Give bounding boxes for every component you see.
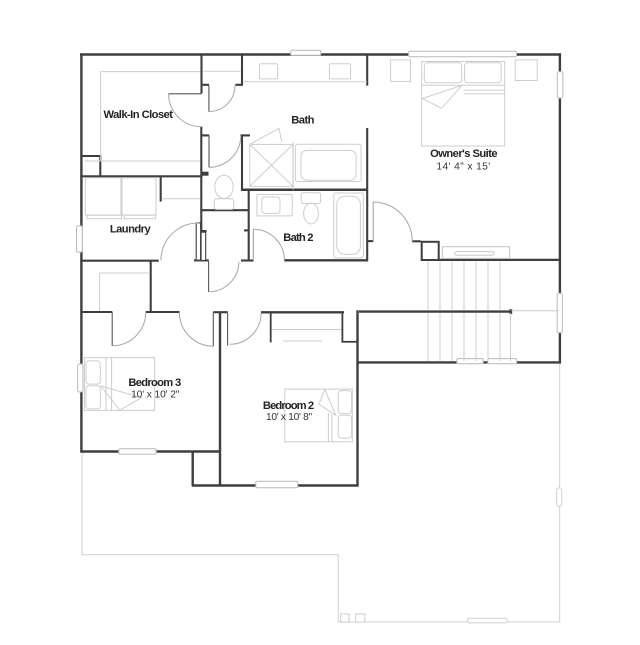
svg-text:Bedroom 3: Bedroom 3 (128, 377, 181, 389)
svg-text:Owner's Suite: Owner's Suite (430, 148, 497, 160)
svg-text:Laundry: Laundry (110, 223, 152, 235)
svg-text:Bath: Bath (291, 114, 314, 126)
svg-text:Bedroom 2: Bedroom 2 (263, 400, 314, 412)
svg-text:10' x 10' 8": 10' x 10' 8" (266, 412, 313, 423)
svg-text:Bath 2: Bath 2 (283, 232, 313, 244)
svg-text:Walk-In Closet: Walk-In Closet (104, 109, 174, 121)
svg-text:10' x 10' 2": 10' x 10' 2" (131, 389, 180, 400)
svg-text:14' 4" x 15': 14' 4" x 15' (436, 161, 490, 172)
